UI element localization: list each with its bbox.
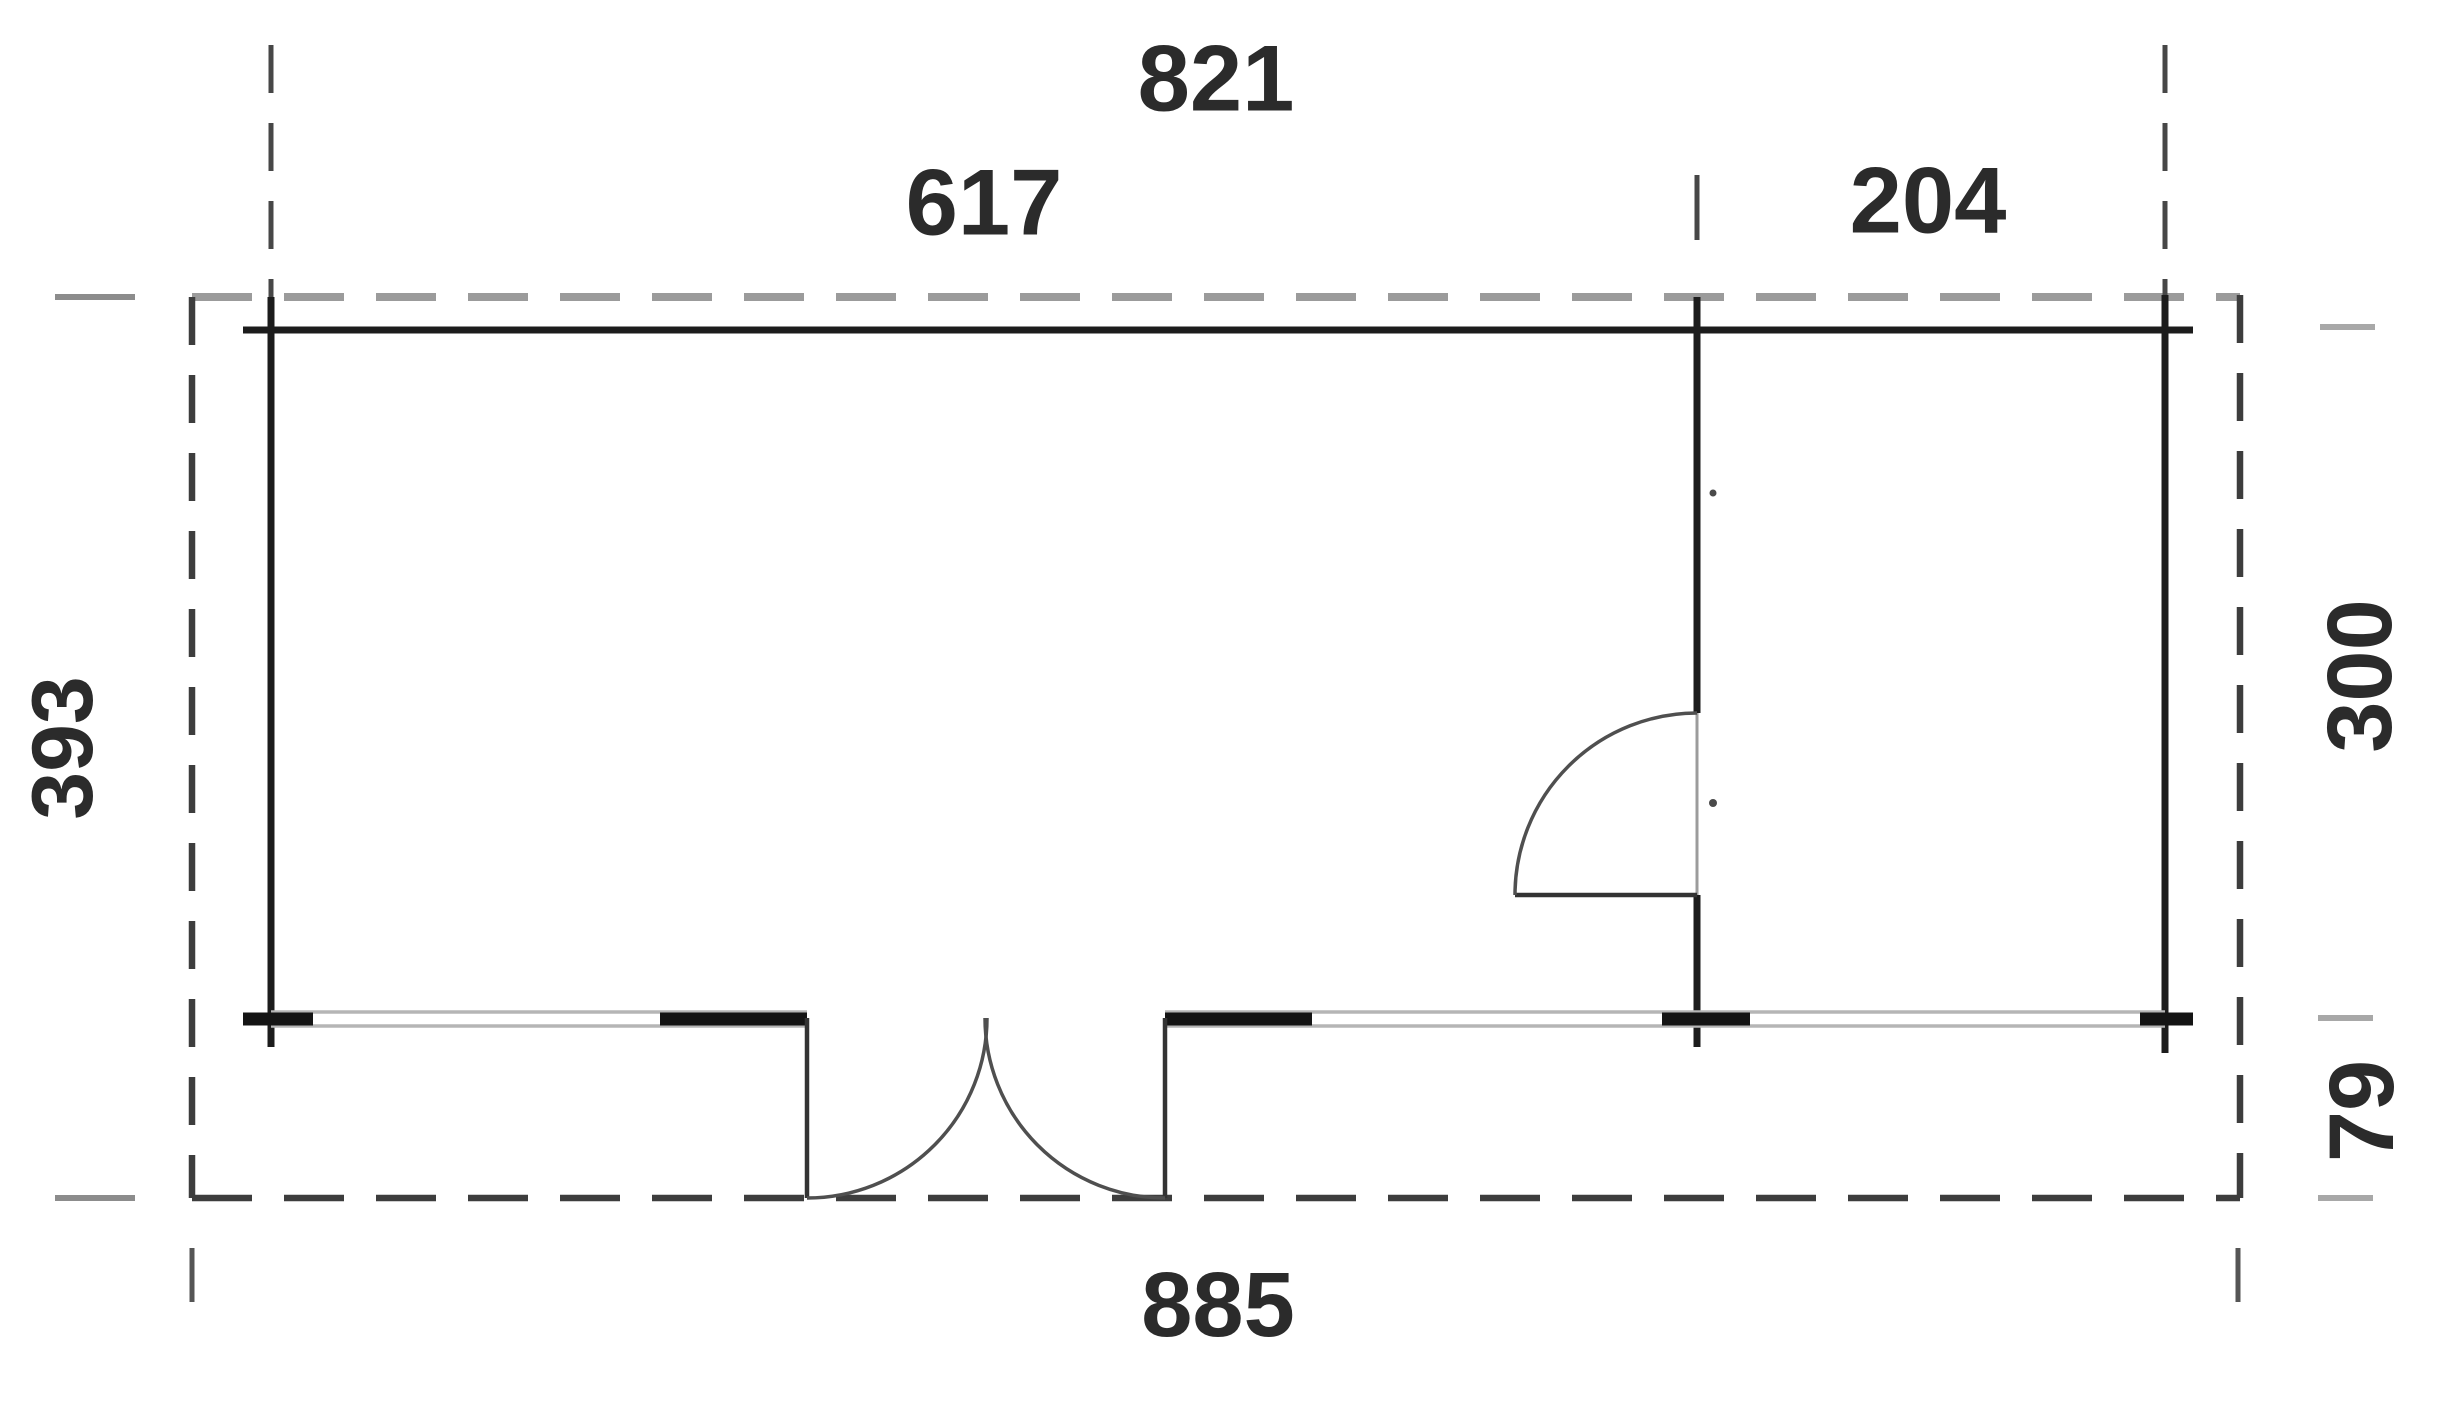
floor-plan-canvas: 821 617 204 393 300 79 885 [0, 0, 2459, 1404]
roof-overhang-outline [192, 295, 2240, 1302]
interior-door [1515, 490, 1717, 896]
dim-label-top-total: 821 [1138, 26, 1295, 131]
floor-plan-drawing: 821 617 204 393 300 79 885 [0, 0, 2459, 1404]
door-swing-arc-left [807, 1018, 987, 1198]
dim-label-top-right-room: 204 [1850, 148, 2007, 253]
dim-label-top-left-room: 617 [906, 150, 1063, 255]
walls [243, 295, 2193, 1053]
front-wall [243, 1012, 2193, 1026]
dim-label-right-porch-depth: 79 [2311, 1060, 2413, 1162]
partition-dot-lower [1709, 799, 1717, 807]
partition-dot-upper [1710, 490, 1717, 497]
dimension-ticks [55, 297, 2375, 1198]
dim-label-left-overall-depth: 393 [15, 676, 111, 820]
double-door [807, 1018, 1165, 1198]
interior-door-swing-arc [1515, 713, 1697, 895]
dim-label-right-main-depth: 300 [2309, 599, 2411, 753]
dimension-labels: 821 617 204 393 300 79 885 [15, 26, 2413, 1357]
door-swing-arc-right [985, 1018, 1165, 1198]
dim-label-bottom-total: 885 [1141, 1254, 1295, 1356]
